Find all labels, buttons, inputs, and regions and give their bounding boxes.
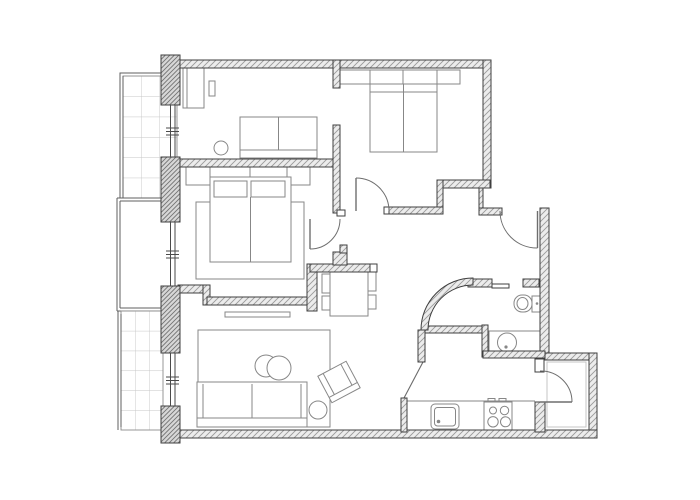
washbasin-counter bbox=[489, 331, 542, 352]
wall-segment bbox=[437, 180, 490, 188]
door-post bbox=[370, 264, 377, 272]
wall-segment bbox=[418, 330, 425, 362]
wall-segment bbox=[333, 60, 340, 88]
wall-segment bbox=[178, 159, 338, 167]
pillar bbox=[161, 406, 180, 443]
door-post bbox=[337, 210, 345, 216]
wall-segment bbox=[387, 207, 443, 214]
door-post bbox=[535, 359, 544, 372]
door-post bbox=[384, 207, 389, 214]
nesting-table bbox=[267, 356, 291, 380]
wall-segment bbox=[333, 125, 340, 213]
wall-segment bbox=[424, 326, 487, 333]
wall-segment bbox=[483, 351, 545, 358]
wall-segment bbox=[535, 402, 545, 432]
wall-segment bbox=[589, 353, 597, 438]
wall-segment bbox=[207, 297, 308, 305]
wall-segment bbox=[483, 60, 491, 188]
round-side-table bbox=[309, 401, 327, 419]
wall-segment bbox=[540, 208, 549, 358]
floor-plan-svg bbox=[0, 0, 700, 500]
wall-segment bbox=[162, 430, 597, 438]
dresser bbox=[183, 68, 204, 108]
toilet-flush-button bbox=[536, 302, 539, 305]
floor-plan-page bbox=[0, 0, 700, 500]
pillar bbox=[161, 55, 180, 105]
balcony-lower-tiles bbox=[121, 311, 163, 430]
wall-segment bbox=[401, 398, 407, 432]
lintel-line bbox=[492, 284, 509, 288]
round-stool bbox=[214, 141, 228, 155]
wall-segment bbox=[523, 279, 539, 287]
wall-segment bbox=[479, 208, 502, 215]
pillar bbox=[161, 286, 180, 353]
washbasin-drain bbox=[504, 345, 507, 348]
kitchen-sink-drain bbox=[437, 420, 441, 424]
wall-segment bbox=[340, 245, 347, 253]
wall-segment bbox=[333, 252, 347, 265]
pillar bbox=[161, 157, 180, 222]
dining-table bbox=[330, 270, 368, 316]
wall-segment bbox=[479, 188, 483, 209]
